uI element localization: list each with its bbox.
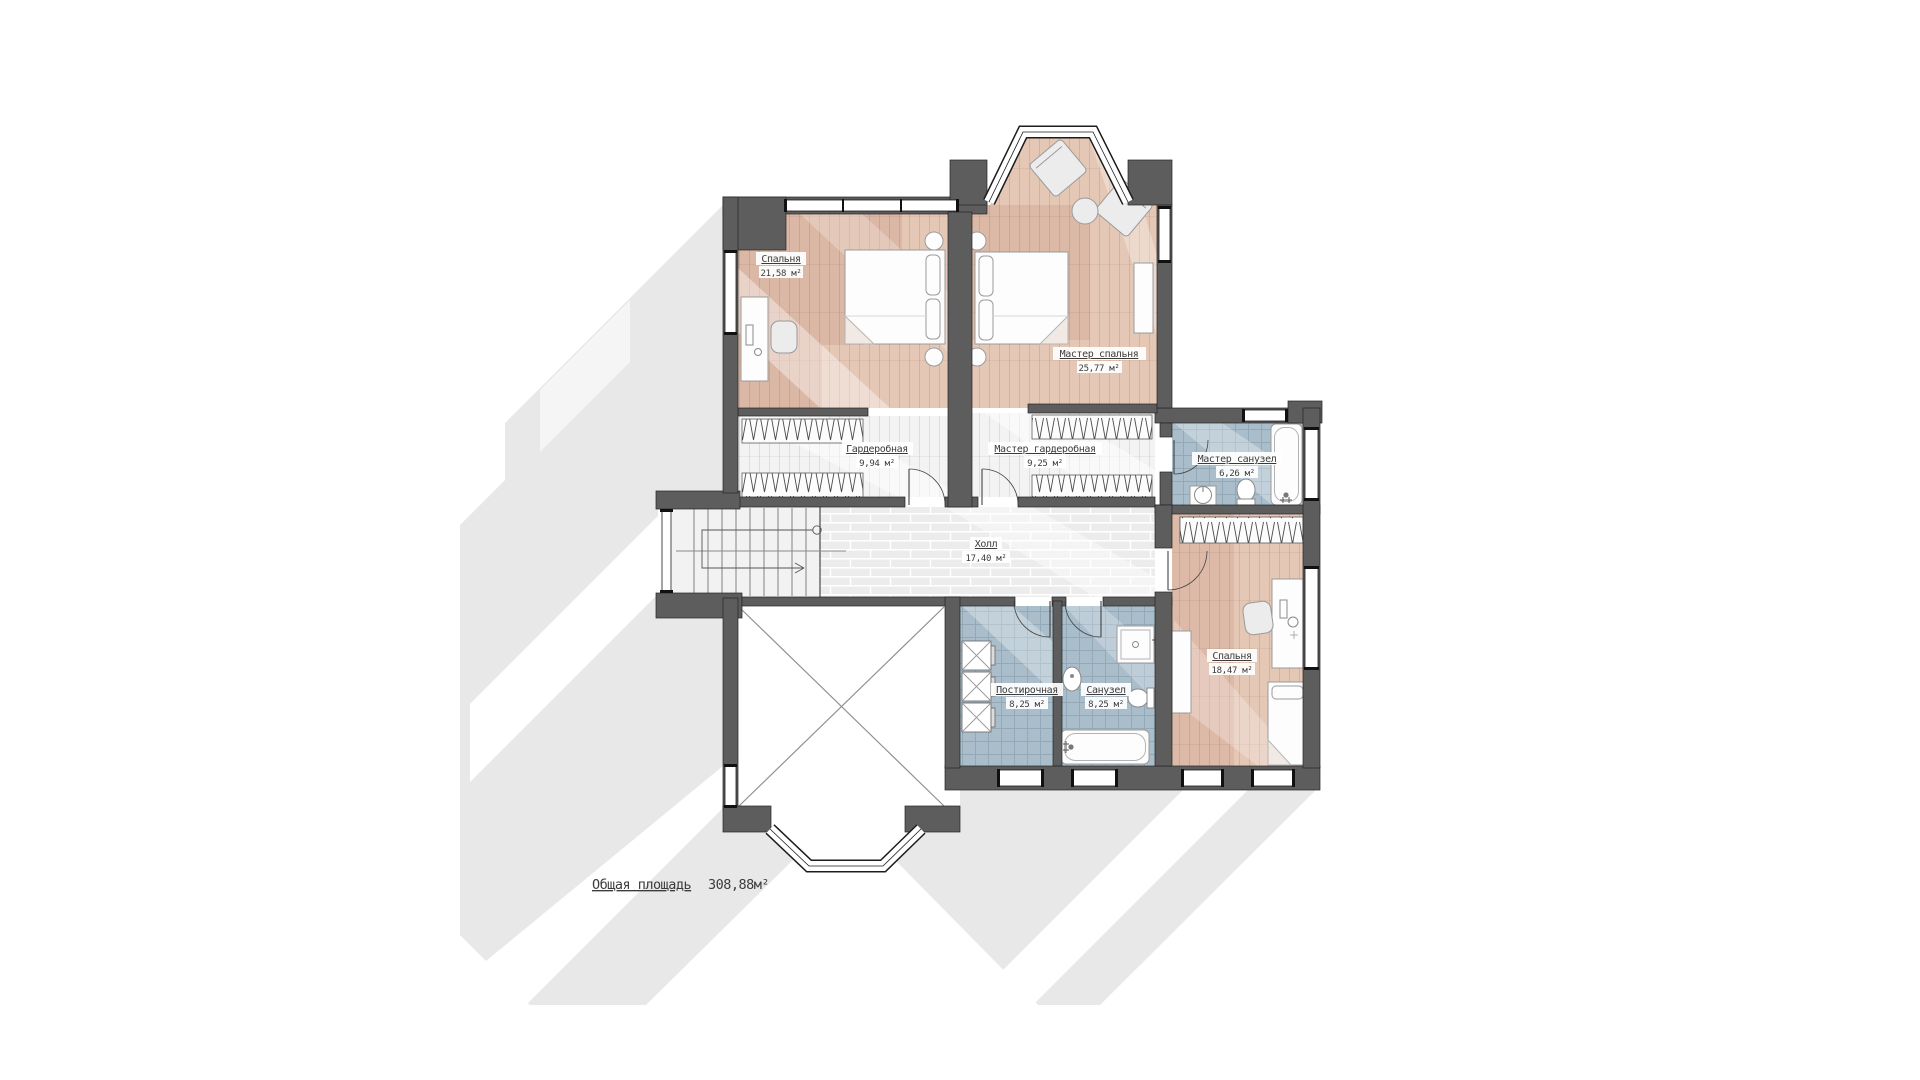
room-area: 9,94 м² <box>859 459 895 469</box>
chair <box>771 321 797 353</box>
bathtub <box>1061 730 1149 764</box>
window <box>660 509 673 593</box>
room-name: Мастер гардеробная <box>994 443 1095 455</box>
window <box>997 769 1044 787</box>
console-cabinet <box>1134 263 1153 333</box>
desk <box>1272 579 1303 668</box>
room-name: Санузел <box>1086 685 1126 696</box>
washing-machines <box>962 641 995 732</box>
rack <box>742 419 863 443</box>
desk <box>741 297 768 381</box>
shower <box>1117 626 1158 663</box>
total-area-note: Общая площадь 308,88м² <box>592 877 769 893</box>
window <box>1304 427 1319 501</box>
floor-plan: Спальня 21,58 м² Мастер спальня 25,77 м²… <box>0 0 1920 1080</box>
wardrobe-cabinet <box>1172 631 1191 713</box>
room-area: 18,47 м² <box>1212 666 1253 676</box>
chair <box>1242 600 1274 636</box>
window <box>1251 769 1295 787</box>
window <box>1304 566 1319 670</box>
rack <box>1180 517 1303 543</box>
single-bed <box>1268 682 1307 765</box>
window <box>1071 769 1118 787</box>
room-area: 17,40 м² <box>966 554 1007 564</box>
toilet <box>1237 479 1255 501</box>
room-name: Постирочная <box>996 685 1058 696</box>
room-name: Мастер санузел <box>1198 454 1277 465</box>
room-area: 8,25 м² <box>1009 700 1045 710</box>
room-area: 25,77 м² <box>1079 364 1120 374</box>
toilet <box>1128 688 1154 708</box>
staircase <box>672 507 846 597</box>
rack <box>1032 475 1152 500</box>
total-area-label: Общая площадь <box>592 877 692 893</box>
window <box>724 764 737 808</box>
room-name: Гардеробная <box>846 443 908 455</box>
room-name: Мастер спальня <box>1060 349 1139 360</box>
room-name: Спальня <box>1212 651 1251 662</box>
window <box>1158 206 1171 263</box>
room-area: 21,58 м² <box>761 269 802 279</box>
room-area: 9,25 м² <box>1027 459 1063 469</box>
room-name: Спальня <box>761 254 800 265</box>
round-table <box>1072 198 1098 224</box>
window <box>1181 769 1224 787</box>
room-name: Холл <box>975 539 998 550</box>
total-area-value: 308,88м² <box>708 877 769 893</box>
sink <box>1063 667 1081 691</box>
window <box>724 250 737 335</box>
floor-plan-page: Спальня 21,58 м² Мастер спальня 25,77 м²… <box>0 0 1920 1080</box>
rack <box>1032 415 1152 439</box>
room-area: 8,25 м² <box>1088 700 1124 710</box>
room-area: 6,26 м² <box>1219 469 1255 479</box>
window <box>784 199 959 212</box>
rack <box>742 473 863 499</box>
window <box>1242 409 1288 422</box>
